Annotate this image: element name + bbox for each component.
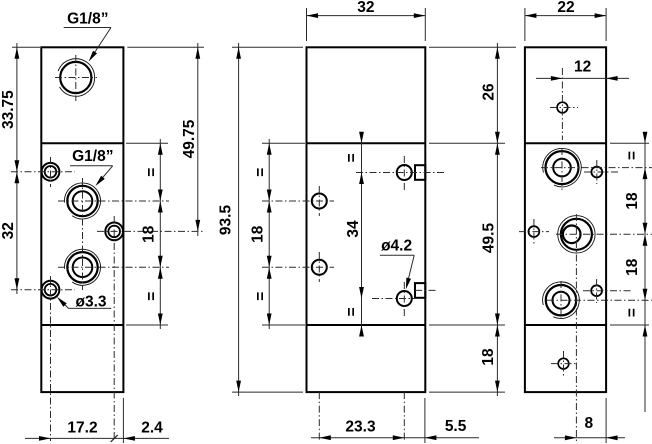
svg-text:34: 34	[345, 220, 362, 238]
svg-text:12: 12	[574, 59, 591, 76]
svg-text:26: 26	[481, 83, 498, 101]
svg-text:17.2: 17.2	[67, 420, 97, 437]
svg-text:18: 18	[141, 225, 158, 243]
svg-text:=: =	[252, 168, 269, 177]
svg-text:23.3: 23.3	[345, 419, 376, 436]
svg-text:18: 18	[480, 348, 497, 366]
svg-text:32: 32	[0, 222, 17, 239]
svg-text:=: =	[624, 308, 641, 317]
svg-text:93.5: 93.5	[218, 205, 235, 236]
svg-text:49.75: 49.75	[181, 119, 198, 158]
svg-text:=: =	[144, 292, 161, 301]
svg-text:22: 22	[557, 0, 574, 16]
svg-text:18: 18	[249, 225, 266, 243]
svg-text:ø4.2: ø4.2	[381, 237, 412, 254]
svg-text:=: =	[343, 307, 360, 316]
svg-text:=: =	[343, 153, 360, 162]
svg-text:=: =	[624, 151, 641, 160]
svg-text:=: =	[144, 168, 161, 177]
svg-text:=: =	[252, 292, 269, 301]
svg-text:8: 8	[584, 415, 593, 432]
svg-text:G1/8”: G1/8”	[67, 11, 108, 28]
svg-text:2.4: 2.4	[141, 420, 163, 437]
svg-text:32: 32	[357, 0, 374, 16]
svg-text:G1/8”: G1/8”	[72, 148, 113, 165]
svg-text:33.75: 33.75	[0, 90, 17, 129]
svg-text:18: 18	[624, 258, 641, 276]
svg-text:49.5: 49.5	[481, 223, 498, 254]
svg-text:5.5: 5.5	[445, 418, 467, 435]
svg-text:18: 18	[624, 192, 641, 210]
